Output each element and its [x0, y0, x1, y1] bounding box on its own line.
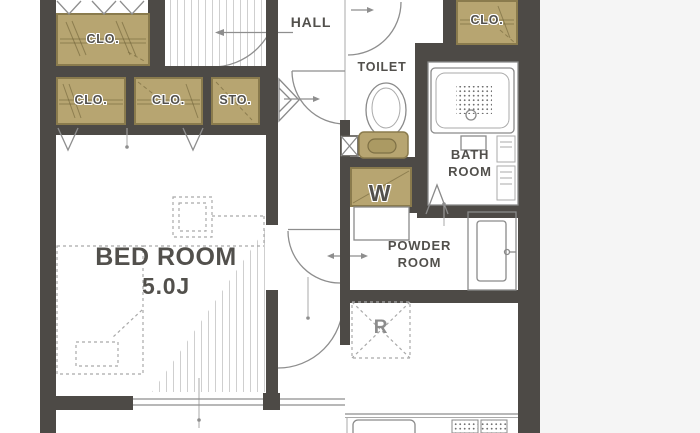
storage-bifold-door [279, 79, 320, 121]
refrigerator-label: R [352, 317, 410, 339]
closet-mid-label: CLO. [134, 93, 203, 107]
washer-pan-icon [354, 207, 409, 240]
closet-entry-label: CLO. [456, 13, 518, 27]
floor-plan: HALL TOILET BATH ROOM POWDER ROOM BED RO… [0, 0, 700, 433]
bathroom-label-line2: ROOM [428, 163, 512, 180]
bedroom-name: BED ROOM [66, 242, 266, 272]
kitchen-fixtures [353, 420, 507, 433]
powder-room-label-line1: POWDER [357, 238, 482, 255]
closet-left-label: CLO. [56, 93, 126, 107]
bath-folding-door [426, 185, 448, 214]
bathroom-label-line1: BATH [428, 146, 512, 163]
powder-room-label-line2: ROOM [357, 255, 482, 272]
pipe-shaft-icon [341, 136, 358, 156]
powder-room-label: POWDER ROOM [357, 238, 482, 271]
bedroom-size: 5.0J [66, 272, 266, 301]
toilet-icon [359, 83, 408, 158]
kitchen-sink-icon [353, 420, 415, 433]
bathroom-label: BATH ROOM [428, 146, 512, 180]
bathroom-fixtures [426, 62, 518, 214]
stove-burner-icon [481, 420, 507, 433]
storage-label: STO. [211, 93, 260, 107]
toilet-label: TOILET [348, 60, 416, 74]
closet-door-marks [57, 1, 203, 150]
stove-burner-icon [452, 420, 478, 433]
bedroom-label: BED ROOM 5.0J [66, 242, 266, 301]
washer-label: W [348, 180, 412, 206]
hall-label: HALL [281, 14, 341, 30]
closet-top-label: CLO. [56, 32, 150, 46]
